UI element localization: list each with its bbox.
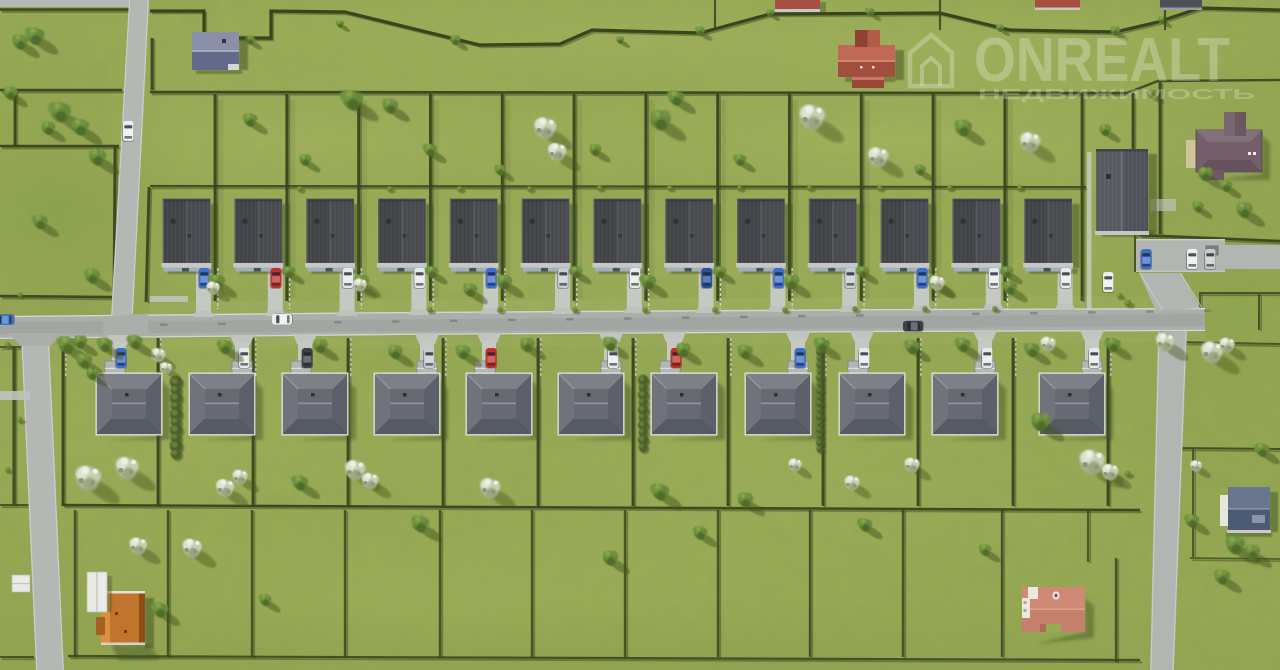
svg-text:ONREALT: ONREALT xyxy=(974,26,1230,95)
svg-text:НЕДВИЖИМОСТЬ: НЕДВИЖИМОСТЬ xyxy=(978,87,1255,103)
